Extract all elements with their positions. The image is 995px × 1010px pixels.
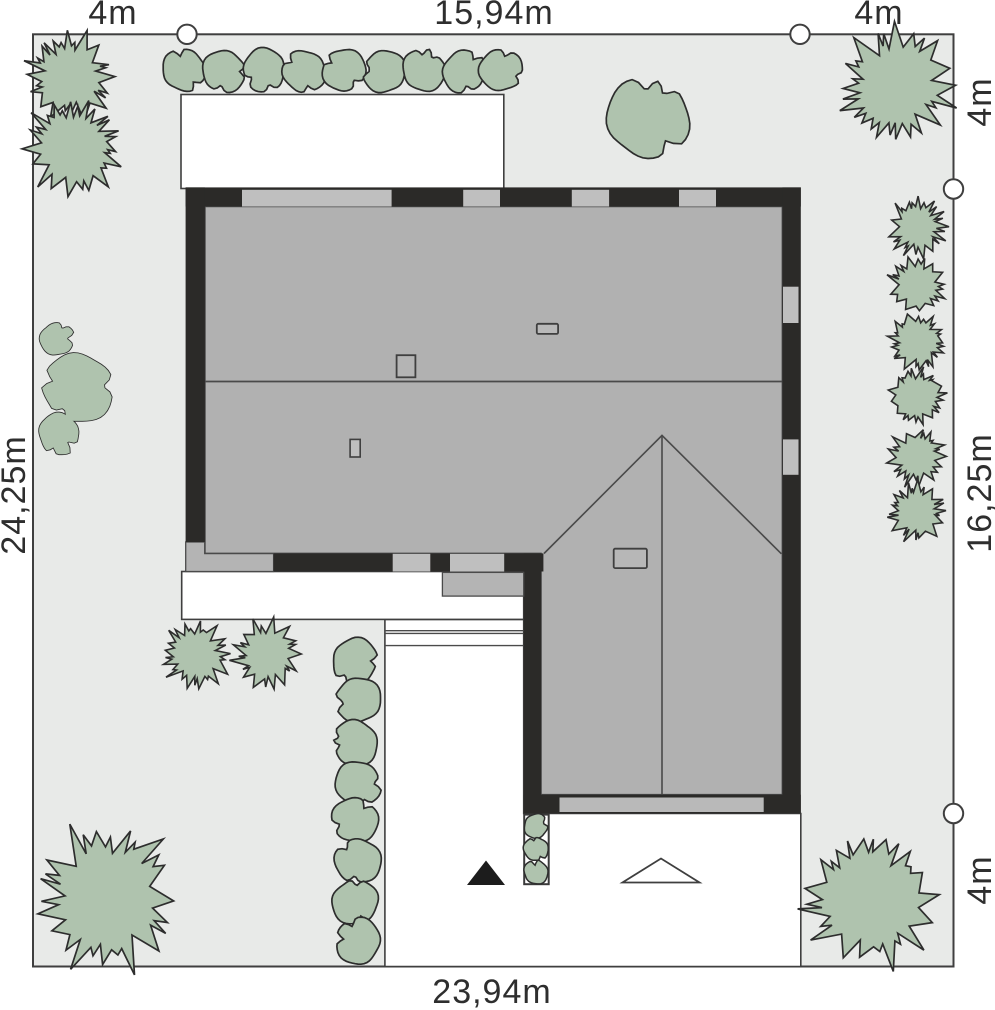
svg-text:15,94m: 15,94m: [434, 0, 553, 32]
svg-text:24,25m: 24,25m: [0, 435, 33, 554]
svg-text:4m: 4m: [961, 77, 995, 126]
svg-text:16,25m: 16,25m: [961, 433, 995, 552]
svg-text:4m: 4m: [961, 855, 995, 904]
svg-text:4m: 4m: [88, 0, 137, 32]
svg-text:4m: 4m: [854, 0, 903, 32]
svg-text:23,94m: 23,94m: [432, 973, 551, 1010]
